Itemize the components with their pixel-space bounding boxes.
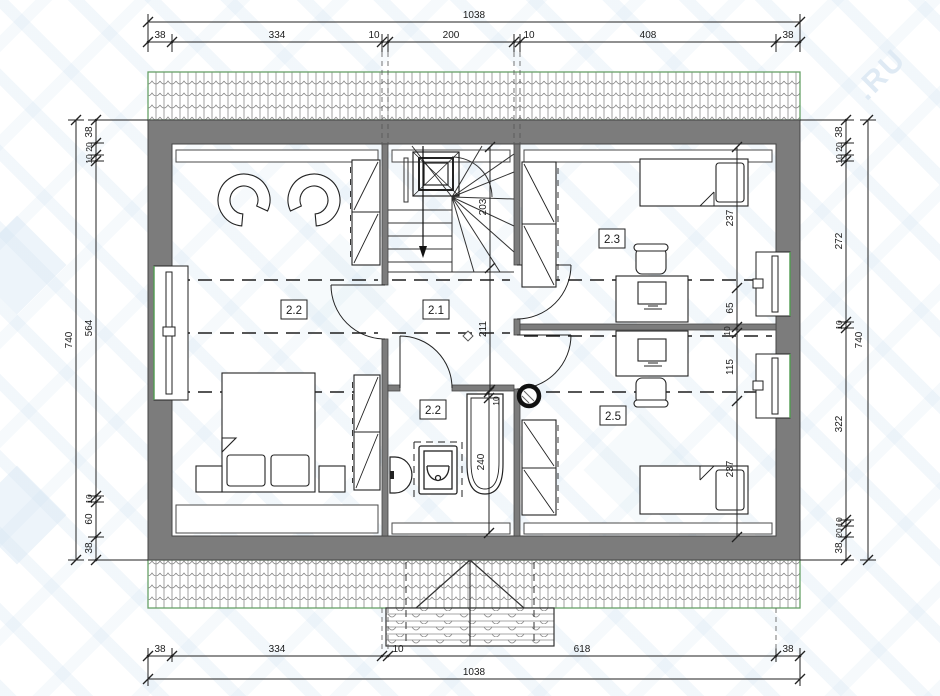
- dim-bottom-seg: 618: [574, 644, 591, 655]
- dim-right-total: 740: [854, 331, 865, 348]
- dim-right-seg: 38: [834, 542, 845, 554]
- roof-strip-top: [148, 72, 800, 120]
- dim-left-total: 740: [64, 331, 75, 348]
- armchair-left-icon: [208, 164, 277, 231]
- dim-top-seg: 408: [640, 30, 657, 41]
- dim-bottom-seg: 10: [392, 644, 404, 655]
- dim-left-seg: 10: [84, 154, 94, 164]
- dim-top-seg: 10: [368, 30, 380, 41]
- door-bedroom-bottom-right: [517, 335, 571, 389]
- double-bed: [222, 373, 315, 492]
- wardrobe-left-top: [351, 160, 381, 265]
- room-label-bedroom-top-right: 2.3: [604, 234, 620, 246]
- floor-plan-canvas: .RU: [0, 0, 940, 696]
- wardrobe-2-3: [522, 162, 558, 287]
- dim-right-seg: 322: [834, 415, 845, 432]
- dim-interior-right: 115: [725, 359, 736, 375]
- room-label-bathroom: 2.2: [425, 405, 441, 417]
- dim-top-seg: 334: [269, 30, 286, 41]
- dim-left-seg: 60: [84, 513, 95, 525]
- room-label-hall: 2.1: [428, 305, 444, 317]
- door-bedroom-left: [331, 285, 385, 339]
- roof-strip-bottom: [148, 560, 800, 608]
- dim-interior-right: 65: [725, 302, 736, 314]
- bathtub-icon: [467, 394, 503, 494]
- dim-left-seg: 38: [84, 126, 95, 138]
- chair-2-3: [634, 244, 668, 274]
- dim-top-seg: 38: [154, 30, 166, 41]
- dim-left-seg: 564: [84, 319, 95, 336]
- room-label-bedroom-left: 2.2: [286, 305, 302, 317]
- dim-interior-right: 10: [722, 326, 732, 336]
- dim-right-seg: 10: [834, 517, 844, 527]
- dim-bottom-seg: 38: [782, 644, 794, 655]
- window-right-top: [753, 252, 790, 316]
- staircase: [388, 146, 514, 272]
- single-bed-2-3: [640, 159, 748, 206]
- door-bathroom: [400, 336, 452, 388]
- dim-top-total: 1038: [463, 10, 486, 21]
- dim-right-seg: 10: [834, 320, 844, 330]
- dim-bottom-seg: 38: [154, 644, 166, 655]
- toilet-icon: [414, 442, 462, 500]
- dim-hall-width: 211: [478, 321, 489, 337]
- dim-bottom-seg: 334: [269, 644, 286, 655]
- dim-right-seg: 38: [834, 126, 845, 138]
- dim-interior-right: 237: [725, 209, 736, 226]
- dim-stair-depth: 203: [478, 198, 489, 215]
- washbasin-icon: [390, 457, 412, 493]
- dim-right-seg: 10: [834, 154, 844, 164]
- dim-left-seg: 10: [84, 494, 94, 504]
- dim-right-seg: 20: [834, 142, 844, 152]
- dim-right-seg: 272: [834, 232, 845, 249]
- chimney-icon: [519, 386, 539, 406]
- dim-interior-right: 237: [725, 460, 736, 477]
- window-right-bottom: [753, 354, 790, 418]
- desk-2-3: [616, 276, 688, 322]
- dim-left-seg: 38: [84, 542, 95, 554]
- dim-bath-length: 240: [476, 453, 487, 470]
- armchair-right-icon: [281, 164, 350, 231]
- desk-2-5: [616, 331, 688, 376]
- wardrobe-left-bottom: [353, 375, 381, 490]
- dim-left-seg: 20: [84, 142, 94, 152]
- dim-right-seg: 20: [834, 528, 844, 538]
- wardrobe-2-5: [522, 420, 558, 515]
- chair-2-5: [634, 378, 668, 407]
- window-left: [154, 266, 188, 400]
- dim-top-seg: 38: [782, 30, 794, 41]
- room-label-bedroom-bottom-right: 2.5: [605, 411, 621, 423]
- dim-tub-offset: 10: [491, 396, 501, 406]
- skylight-icon: [413, 152, 459, 196]
- dim-top-seg: 10: [523, 30, 535, 41]
- floor-plan-svg: 2.2 2.1 2.3 2.2 2.5: [0, 0, 940, 696]
- dim-bottom-total: 1038: [463, 667, 486, 678]
- dim-top-seg: 200: [443, 30, 460, 41]
